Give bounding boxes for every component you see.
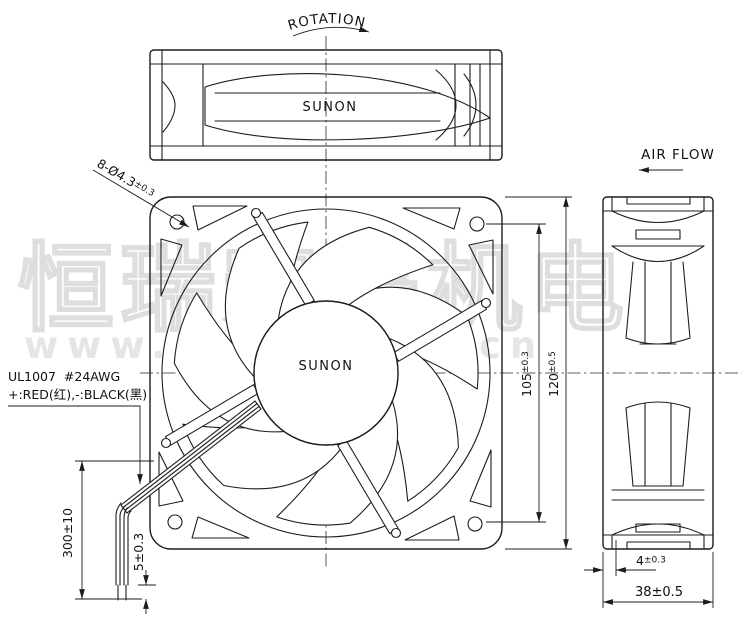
strip-length-dimension: 5±0.3 [131, 533, 156, 614]
bare-wire-ends [118, 585, 126, 600]
wire-spec-line2: +:RED(红),-:BLACK(黑) [8, 387, 147, 402]
front-view-brand-label: SUNON [299, 359, 354, 374]
rotation-indicator: ROTATION [282, 11, 380, 36]
lead-length-dim: 300±10 [60, 508, 75, 558]
top-view-brand-label: SUNON [303, 100, 358, 115]
wire-spec-line1: UL1007 #24AWG [8, 369, 120, 384]
airflow-label: AIR FLOW [641, 147, 715, 163]
wire-spec-leader-icon [8, 406, 140, 484]
rotation-label: ROTATION [286, 11, 367, 34]
technical-drawing-canvas: 恒瑞宏晟机电 www.bjhengrui.cn ROTATION AIR FLO… [0, 0, 750, 618]
frame-size-dim: 120±0.5 [546, 351, 561, 397]
flange-offset-dim: 4±0.3 [636, 553, 666, 568]
airflow-indicator: AIR FLOW [639, 147, 715, 170]
strip-length-dim: 5±0.3 [131, 533, 146, 571]
depth-dim: 38±0.5 [635, 585, 683, 600]
leader-arrow-icon [93, 170, 189, 227]
wire-spec-label: UL1007 #24AWG +:RED(红),-:BLACK(黑) [8, 369, 147, 484]
mounting-hole-dim: 8-Ø4.3±0.3 [94, 156, 157, 201]
